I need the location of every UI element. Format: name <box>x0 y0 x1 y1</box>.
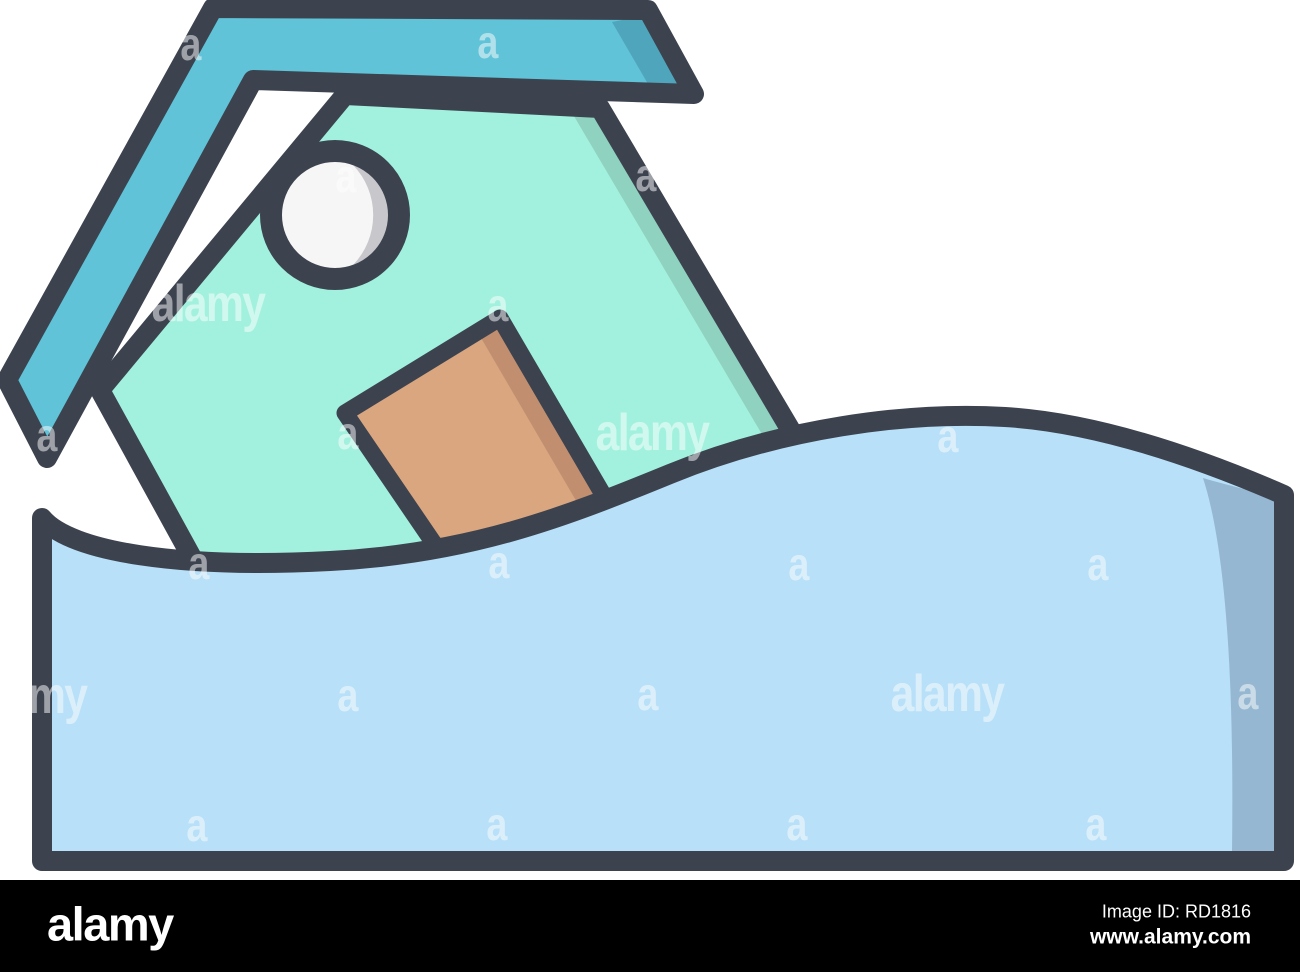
window-group <box>271 151 399 279</box>
alamy-logo: alamy <box>47 896 173 951</box>
image-id-label: Image ID: RD1816 <box>1090 902 1251 924</box>
flood-house-illustration <box>0 0 1300 880</box>
website-url-label: www.alamy.com <box>1090 923 1251 950</box>
footer-attribution: Image ID: RD1816 www.alamy.com <box>1090 902 1251 951</box>
footer-bar: alamy Image ID: RD1816 www.alamy.com <box>0 880 1300 972</box>
stock-image-page: aaaaalamyaaaalamyaaaaaalamyaaalamyaaaaa … <box>0 0 1300 972</box>
